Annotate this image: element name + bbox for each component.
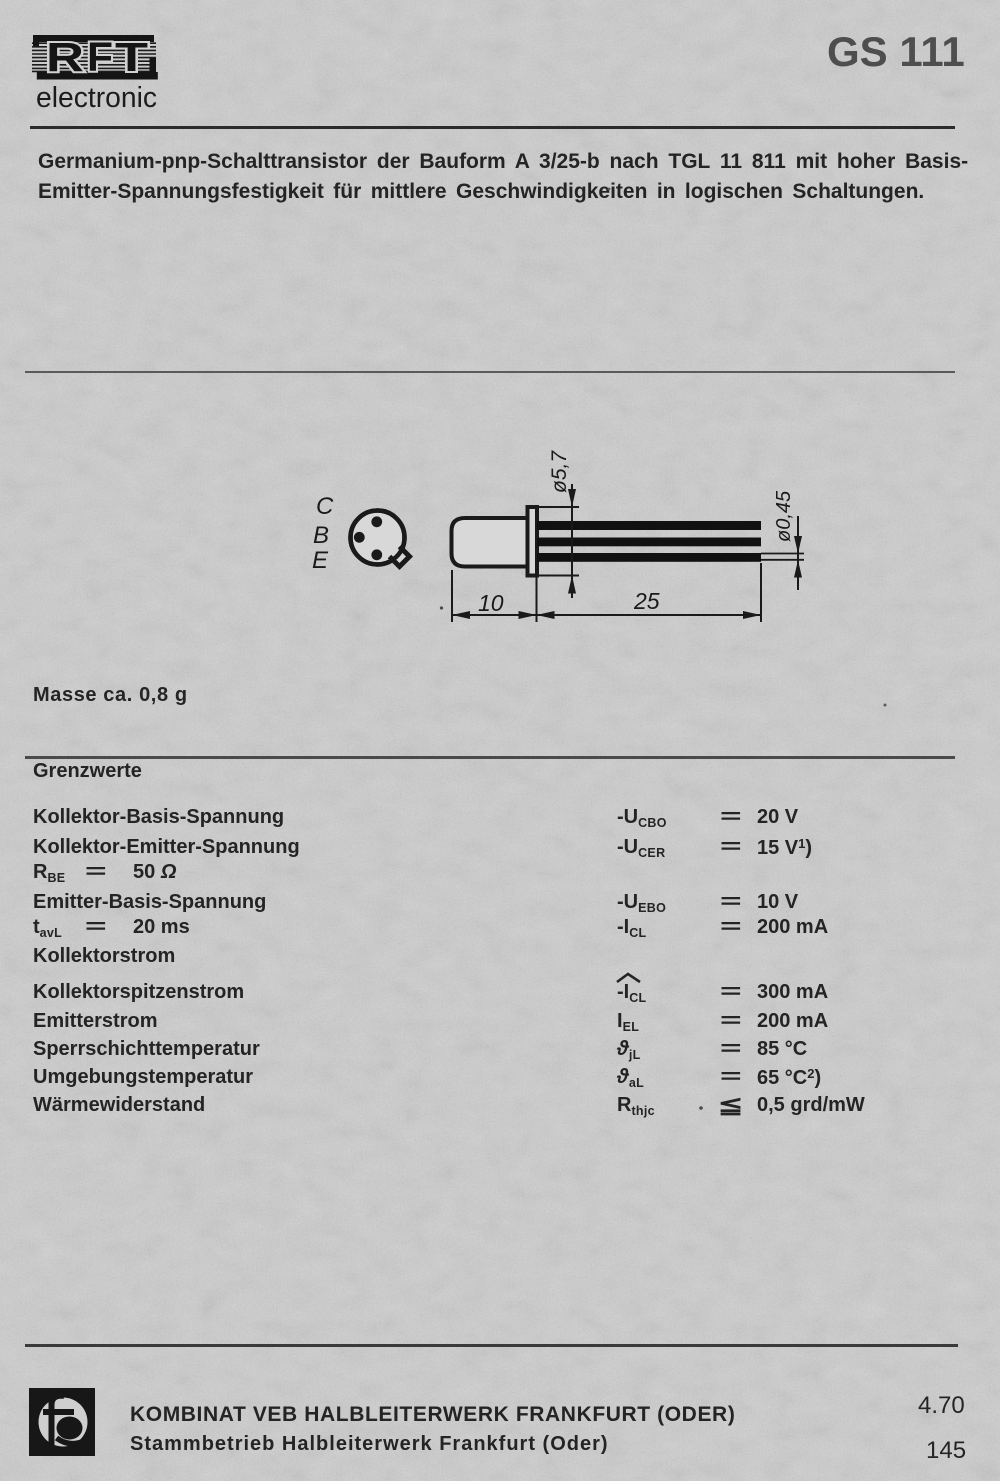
svg-text:F: F: [87, 34, 113, 80]
svg-text:T: T: [115, 34, 148, 80]
svg-text:E: E: [312, 547, 329, 574]
svg-text:ø0,45: ø0,45: [773, 490, 795, 542]
svg-text:ø5,7: ø5,7: [548, 450, 571, 493]
svg-text:R: R: [46, 34, 84, 80]
svg-text:electronic: electronic: [36, 82, 157, 114]
svg-text:10: 10: [478, 590, 504, 616]
svg-text:B: B: [313, 522, 329, 549]
svg-text:25: 25: [633, 588, 660, 614]
svg-text:C: C: [316, 493, 334, 520]
